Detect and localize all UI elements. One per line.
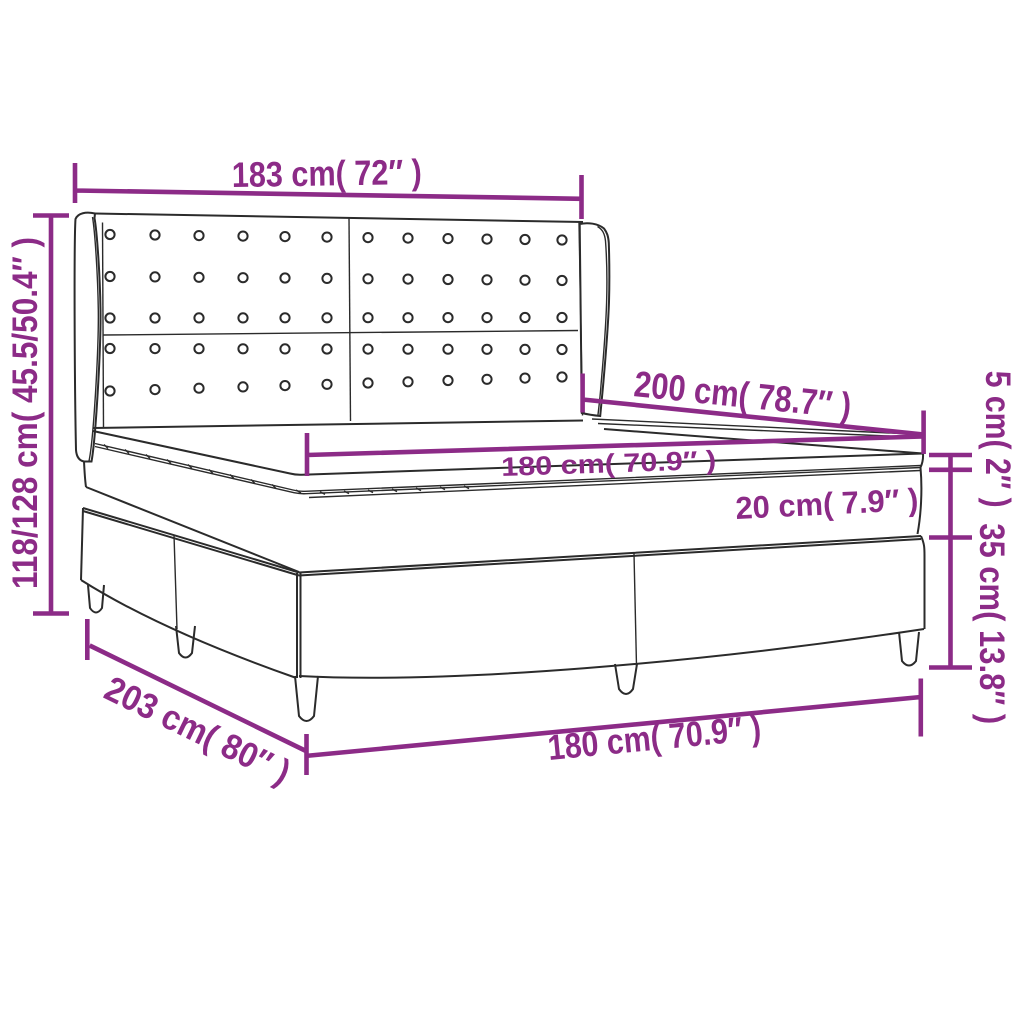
svg-text:35 cm( 13.8″ ): 35 cm( 13.8″ ) bbox=[972, 523, 1012, 724]
svg-text:5 cm( 2″ ): 5 cm( 2″ ) bbox=[978, 371, 1018, 508]
svg-text:183 cm( 72″ ): 183 cm( 72″ ) bbox=[231, 152, 422, 195]
svg-text:118/128 cm( 45.5/50.4″ ): 118/128 cm( 45.5/50.4″ ) bbox=[5, 237, 45, 589]
